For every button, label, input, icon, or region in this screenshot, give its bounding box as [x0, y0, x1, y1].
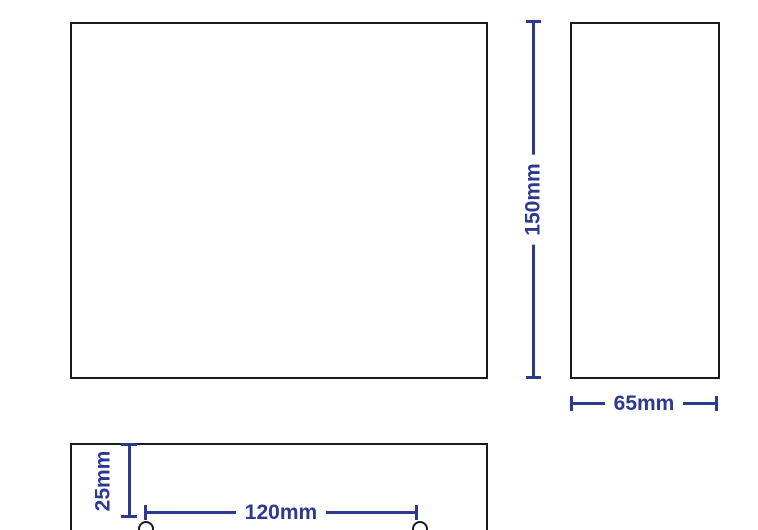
hole-offset-dimension-label: 25mm [93, 451, 114, 512]
height-dimension-label: 150mm [521, 154, 546, 244]
hole-spacing-dimension: 120mm [144, 505, 418, 520]
hole-offset-dimension [121, 443, 137, 518]
mounting-hole-right [412, 521, 428, 530]
side-view-rect [570, 22, 720, 379]
hole-spacing-dim-cap-right [415, 505, 418, 520]
technical-drawing-canvas: 150mm 65mm 25mm 120mm [0, 0, 758, 530]
depth-dim-cap-right [715, 396, 718, 411]
depth-dimension-label: 65mm [605, 391, 684, 416]
depth-dimension: 65mm [570, 396, 718, 411]
height-dimension: 150mm [526, 20, 541, 379]
front-view-rect [70, 22, 488, 379]
hole-spacing-dimension-label: 120mm [236, 500, 326, 525]
hole-offset-dim-line [128, 443, 131, 518]
mounting-hole-left [138, 521, 154, 530]
height-dim-cap-bottom [526, 376, 541, 379]
hole-offset-dim-cap-bottom [121, 515, 137, 518]
